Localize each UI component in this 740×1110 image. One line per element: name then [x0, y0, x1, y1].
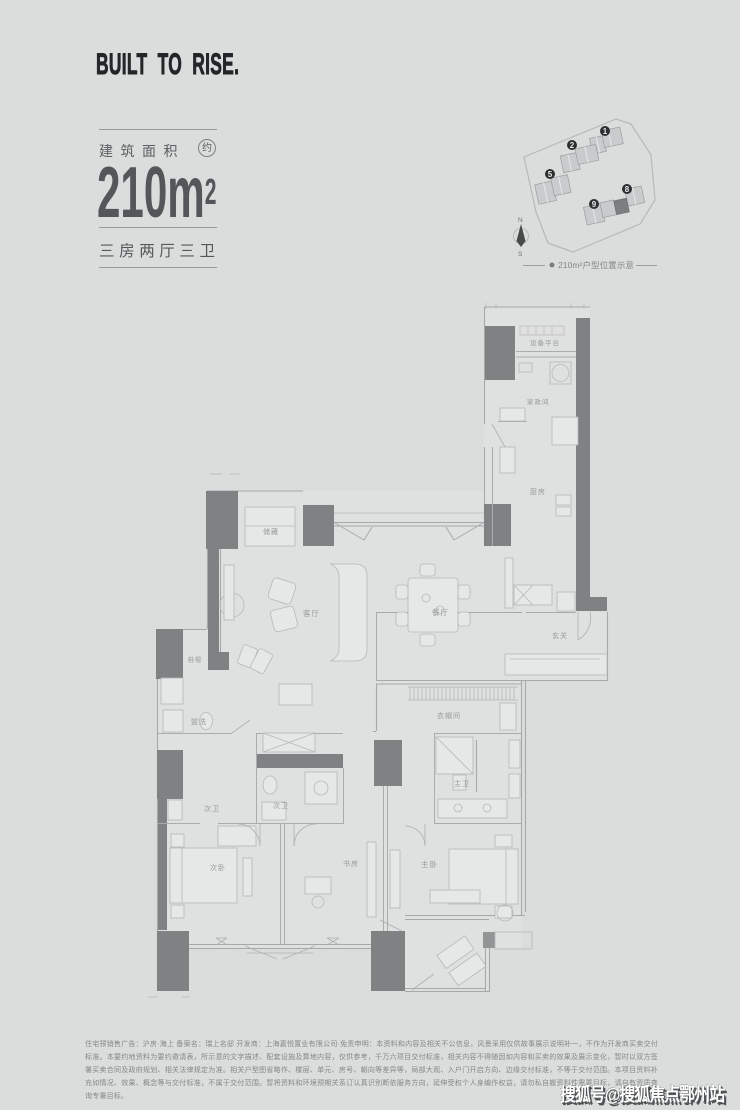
svg-text:次卫: 次卫 — [204, 804, 220, 813]
svg-text:次卫: 次卫 — [273, 801, 289, 810]
svg-text:储藏: 储藏 — [263, 527, 279, 536]
svg-text:鞋帽: 鞋帽 — [188, 656, 202, 664]
svg-text:S: S — [518, 251, 523, 258]
svg-text:主卧: 主卧 — [421, 859, 438, 869]
svg-text:次卧: 次卧 — [210, 863, 226, 872]
svg-text:衣帽间: 衣帽间 — [437, 711, 461, 720]
svg-text:1: 1 — [603, 127, 608, 136]
svg-text:210m²户型位置示意: 210m²户型位置示意 — [558, 260, 634, 270]
svg-text:餐厅: 餐厅 — [432, 608, 449, 617]
svg-text:设备平台: 设备平台 — [530, 338, 560, 347]
svg-text:9: 9 — [592, 200, 597, 209]
svg-text:家政间: 家政间 — [527, 397, 550, 406]
svg-text:玄关: 玄关 — [552, 631, 568, 640]
svg-text:8: 8 — [625, 185, 630, 194]
svg-text:2: 2 — [570, 141, 575, 150]
svg-text:客厅: 客厅 — [303, 608, 320, 618]
svg-text:5: 5 — [548, 170, 553, 179]
svg-text:N: N — [518, 217, 523, 224]
svg-text:厨房: 厨房 — [530, 487, 546, 496]
svg-text:盥洗: 盥洗 — [191, 717, 207, 726]
svg-text:书房: 书房 — [343, 859, 359, 868]
svg-text:主卫: 主卫 — [454, 779, 470, 788]
